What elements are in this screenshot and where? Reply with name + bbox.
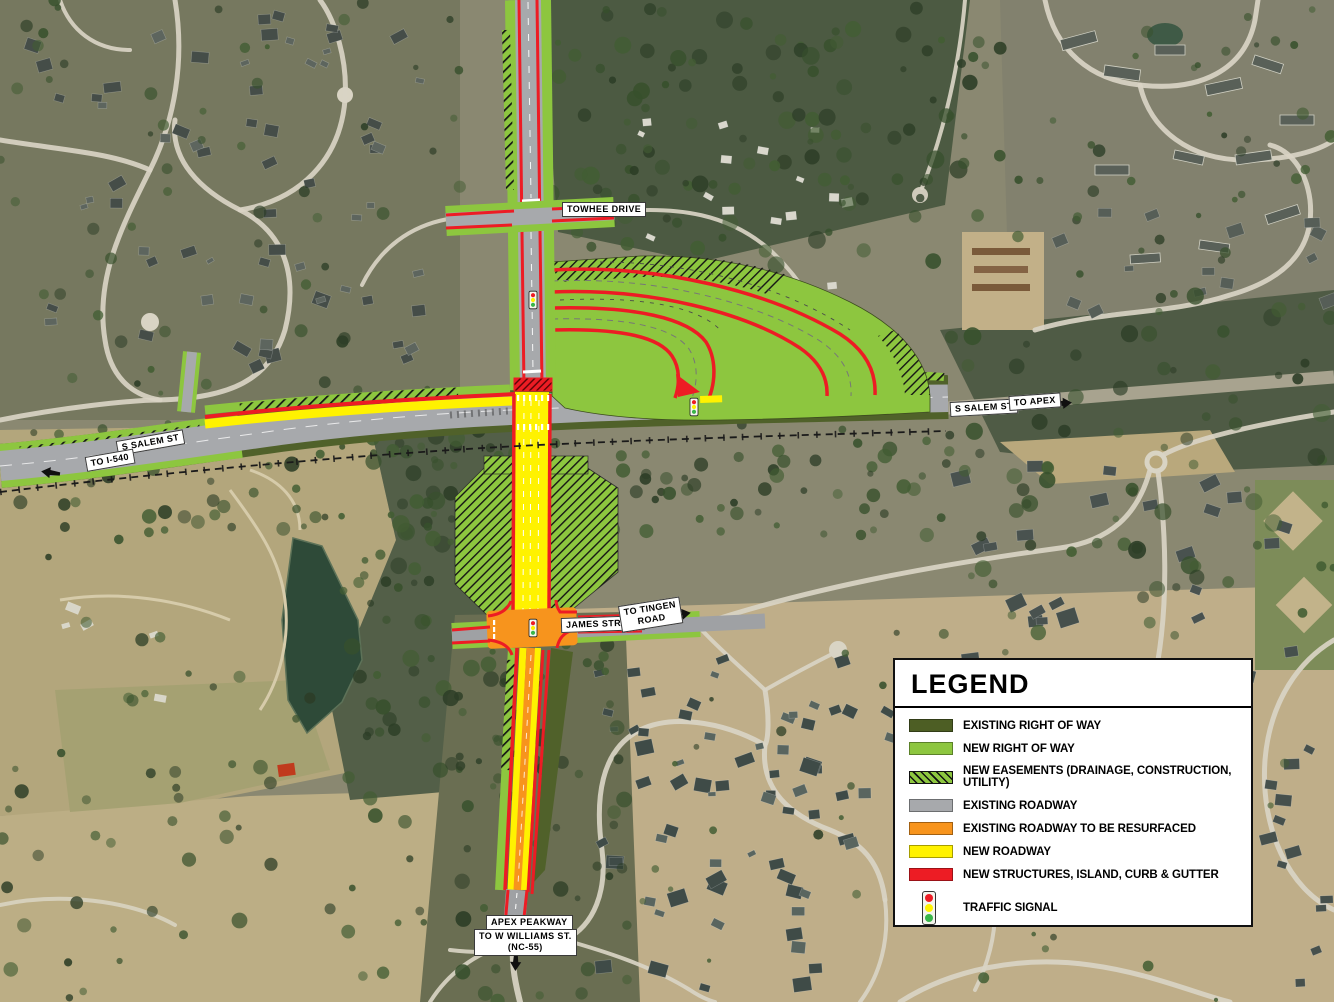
legend-swatch [909, 845, 963, 858]
traffic-signal-icon [529, 291, 537, 309]
traffic-signal-icon [690, 398, 698, 416]
legend-item-new-structures: NEW STRUCTURES, ISLAND, CURB & GUTTER [909, 868, 1237, 881]
legend-item-label: NEW RIGHT OF WAY [963, 743, 1075, 755]
legend-item-existing-right-of-way: EXISTING RIGHT OF WAY [909, 719, 1237, 732]
legend-swatch [909, 822, 963, 835]
roadway-improvement-plan-map: TOWHEE DRIVE S SALEM ST TO APEX S SALEM … [0, 0, 1334, 1002]
apex-peakway-label: APEX PEAKWAY [486, 915, 573, 930]
legend-swatch [909, 719, 963, 732]
legend-item-existing-roadway-resurfaced: EXISTING ROADWAY TO BE RESURFACED [909, 822, 1237, 835]
to-w-williams-label: TO W WILLIAMS ST. (NC-55) [474, 929, 577, 956]
legend-item-label: NEW EASEMENTS (DRAINAGE, CONSTRUCTION, U… [963, 765, 1237, 789]
legend-swatch [909, 799, 963, 812]
legend-swatch [909, 771, 963, 784]
legend-item-label: EXISTING RIGHT OF WAY [963, 720, 1101, 732]
legend-item-new-easements: NEW EASEMENTS (DRAINAGE, CONSTRUCTION, U… [909, 765, 1237, 789]
legend-item-label: EXISTING ROADWAY [963, 800, 1077, 812]
traffic-signal-icon [529, 619, 537, 637]
legend-swatch [909, 868, 963, 881]
legend-item-label: NEW ROADWAY [963, 846, 1051, 858]
towhee-drive-label: TOWHEE DRIVE [562, 202, 646, 217]
legend-panel: LEGEND EXISTING RIGHT OF WAYNEW RIGHT OF… [893, 658, 1253, 927]
nc55-line: (NC-55) [479, 942, 572, 953]
legend-item-label: EXISTING ROADWAY TO BE RESURFACED [963, 823, 1196, 835]
legend-item-traffic-signal: TRAFFIC SIGNAL [909, 891, 1237, 925]
red-roof-barn [277, 763, 296, 777]
legend-item-label: TRAFFIC SIGNAL [963, 902, 1057, 914]
legend-swatch [909, 742, 963, 755]
legend-rows: EXISTING RIGHT OF WAYNEW RIGHT OF WAYNEW… [895, 708, 1251, 925]
legend-item-new-roadway: NEW ROADWAY [909, 845, 1237, 858]
traffic-signal-icon [909, 891, 963, 925]
to-w-williams-line: TO W WILLIAMS ST. [479, 931, 572, 942]
legend-item-new-right-of-way: NEW RIGHT OF WAY [909, 742, 1237, 755]
new-roadway-section [513, 392, 550, 616]
legend-title: LEGEND [895, 660, 1251, 706]
legend-item-existing-roadway: EXISTING ROADWAY [909, 799, 1237, 812]
legend-item-label: NEW STRUCTURES, ISLAND, CURB & GUTTER [963, 869, 1219, 881]
